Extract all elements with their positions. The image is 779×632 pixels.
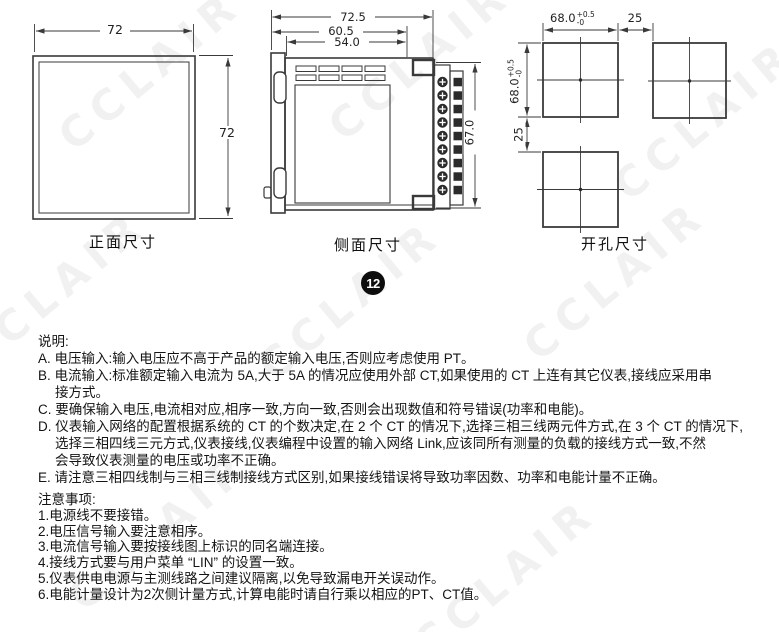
manual-page: CCLAIR CCLAIR CCLAIR CCLAIR CCLAIR CCLAI…: [0, 0, 779, 632]
note-line: 选择三相四线三元方式,仪表接线,仪表编程中设置的输入网络 Link,应该同所有测…: [55, 435, 779, 452]
caution-line: 4.接线方式要与用户菜单 “LIN” 的设置一致。: [38, 555, 779, 571]
cutout-height-dim-label: 68.0 +0.5 -0: [508, 54, 523, 110]
side-knob: [264, 187, 271, 198]
notes-heading: 说明:: [38, 333, 779, 350]
note-line: 会导致仪表测量的电压或功率不正确。: [55, 452, 779, 469]
mount-clip-top: [413, 60, 434, 75]
front-view-caption: 正面尺寸: [81, 231, 165, 252]
notes-section: 说明: A. 电压输入:输入电压应不高于产品的额定输入电压,否则应考虑使用 PT…: [38, 333, 779, 486]
cutout-view-drawing: [518, 23, 731, 233]
page-number-badge: 12: [361, 271, 385, 295]
note-line: C. 要确保输入电压,电流相对应,相序一致,方向一致,否则会出现数值和符号错误(…: [38, 401, 779, 418]
front-width-dim-label: 72: [100, 23, 130, 36]
cutout-height-tolerance: +0.5 -0: [508, 59, 523, 77]
front-view-drawing: [33, 24, 233, 219]
note-line: B. 电流输入:标准额定输入电流为 5A,大于 5A 的情况应使用外部 CT,如…: [38, 367, 779, 384]
side-height-dim-label: 67.0: [464, 111, 477, 155]
side-depth-case-dim-label: 54.0: [325, 36, 369, 49]
front-outer-frame: [33, 56, 195, 219]
page-number: 12: [366, 276, 379, 291]
mount-clip-bottom: [413, 196, 434, 209]
caution-line: 1.电源线不要接错。: [38, 508, 779, 524]
caution-line: 5.仪表供电电源与主测线路之间建议隔离,以免导致漏电开关误动作。: [38, 571, 779, 587]
side-display-area: [295, 85, 390, 203]
tolerance-minus: -0: [577, 19, 595, 27]
centerlines: [537, 37, 731, 233]
note-line: D. 仪表输入网络的配置根据系统的 CT 的个数决定,在 2 个 CT 的情况下…: [38, 418, 779, 435]
front-inner-frame: [39, 62, 189, 213]
side-view-drawing: [264, 10, 481, 213]
caution-line: 3.电流信号输入要按接线图上标识的同名端连接。: [38, 539, 779, 555]
cutout-width-tolerance: +0.5 -0: [577, 11, 595, 26]
note-line: E. 请注意三相四线制与三相三线制接线方式区别,如果接线错误将导致功率因数、功率…: [38, 469, 779, 486]
cutout-gap-v-dim-label: 25: [513, 123, 526, 147]
caution-line: 2.电压信号输入要注意相序。: [38, 524, 779, 540]
cutout-width-value: 68.0: [550, 12, 576, 25]
cautions-heading: 注意事项:: [38, 492, 779, 508]
side-view-caption: 侧面尺寸: [326, 234, 410, 255]
side-clip-tab-top: [274, 72, 286, 103]
cautions-section: 注意事项: 1.电源线不要接错。 2.电压信号输入要注意相序。 3.电流信号输入…: [38, 492, 779, 603]
side-depth-total-dim-label: 72.5: [331, 11, 375, 24]
vent-slots: [296, 66, 385, 81]
cutout-gap-h-dim-label: 25: [623, 12, 647, 25]
note-line: 接方式。: [55, 384, 779, 401]
cutout-width-dim-label: 68.0 +0.5 -0: [549, 11, 596, 26]
caution-line: 6.电能计量设计为2次侧计量方式,计算电能时请自行乘以相应的PT、CT值。: [38, 587, 779, 603]
cutout-height-value: 68.0: [509, 78, 522, 104]
cutout-view-caption: 开孔尺寸: [573, 233, 657, 254]
front-height-dim-label: 72: [212, 126, 242, 139]
side-clip-tab-bottom: [274, 168, 286, 198]
tolerance-minus: -0: [515, 59, 523, 77]
note-line: A. 电压输入:输入电压应不高于产品的额定输入电压,否则应考虑使用 PT。: [38, 350, 779, 367]
